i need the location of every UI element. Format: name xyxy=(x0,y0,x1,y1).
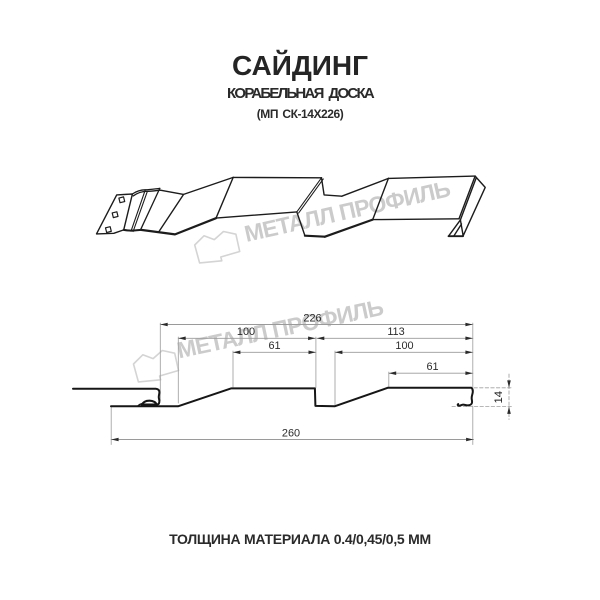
svg-text:113: 113 xyxy=(387,326,404,338)
svg-text:226: 226 xyxy=(303,312,321,324)
svg-text:МЕТАЛЛ ПРОФИЛЬ: МЕТАЛЛ ПРОФИЛЬ xyxy=(242,175,453,247)
svg-text:14: 14 xyxy=(493,391,505,404)
svg-text:100: 100 xyxy=(395,340,413,352)
svg-text:61: 61 xyxy=(426,361,438,373)
svg-text:100: 100 xyxy=(237,326,255,338)
svg-text:260: 260 xyxy=(282,427,300,439)
svg-text:61: 61 xyxy=(268,340,280,352)
svg-text:МЕТАЛЛ ПРОФИЛЬ: МЕТАЛЛ ПРОФИЛЬ xyxy=(175,294,386,363)
